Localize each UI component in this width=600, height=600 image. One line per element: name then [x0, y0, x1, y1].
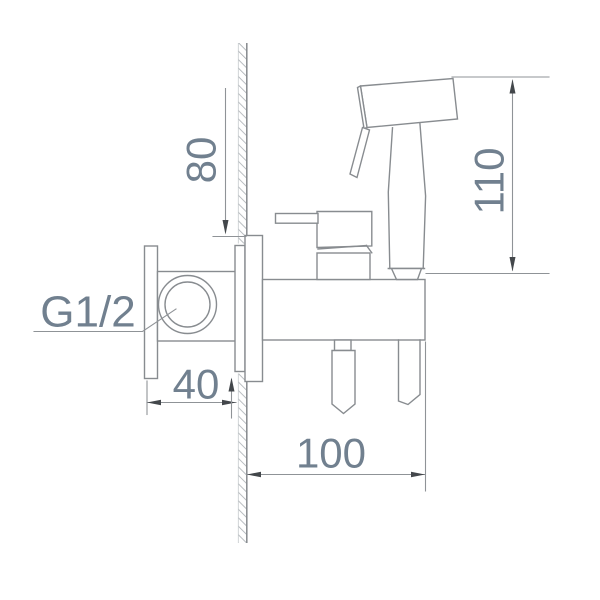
dim-100-arrow-right: [411, 472, 425, 478]
mixer-body: [263, 280, 426, 341]
g12-port-outer-circle: [159, 276, 217, 334]
cartridge-housing: [317, 253, 370, 280]
technical-drawing: 80 110 G1/2 40 100: [0, 0, 600, 600]
bidet-mixer-diagram: 80 110 G1/2 40 100: [0, 0, 600, 600]
dim-40-arrow-left: [147, 400, 161, 406]
dim-40-label: 40: [173, 361, 220, 408]
sprayer-grip-right-edge: [420, 122, 426, 269]
dim-80-label: 80: [178, 137, 225, 184]
inlet-tube: [332, 340, 355, 414]
sprayer-grip-left-edge: [388, 128, 392, 269]
wall-plates: [235, 236, 263, 382]
dim-100-label: 100: [296, 430, 366, 477]
back-plate: [235, 246, 245, 372]
hose-outline: [399, 340, 421, 405]
wall-hatch-lower: [238, 374, 247, 544]
dim-100-arrow-left: [247, 472, 261, 478]
dim-40-arrow-right: [222, 400, 236, 406]
front-cover-plate: [245, 236, 263, 382]
flange-plate: [145, 246, 158, 379]
mixer-handle: [276, 212, 372, 280]
inlet-flange: [145, 246, 237, 379]
inlet-tube-neck: [335, 340, 352, 351]
dim-110-label: 110: [466, 148, 513, 215]
sprayer-head: [361, 79, 458, 128]
dimension-40: 40: [147, 361, 236, 419]
hose-tube: [399, 340, 421, 405]
wall-face-pointer-arrow-up: [229, 378, 235, 392]
dim-80-arrow-down: [223, 220, 229, 235]
handle-block: [317, 212, 372, 248]
mixer-body-rect: [263, 280, 426, 341]
sprayer-nozzle-tip: [392, 269, 422, 280]
dim-110-arrow-down: [510, 257, 516, 272]
dimension-80: 80: [178, 89, 247, 237]
handle-lever-bar: [276, 214, 319, 224]
g12-label: G1/2: [40, 288, 135, 337]
wall-hatch-upper: [238, 43, 247, 244]
inlet-tube-body: [332, 351, 355, 414]
hand-sprayer: [350, 79, 458, 280]
sprayer-trigger-lever: [350, 128, 370, 178]
dim-110-arrow-up: [510, 79, 516, 94]
